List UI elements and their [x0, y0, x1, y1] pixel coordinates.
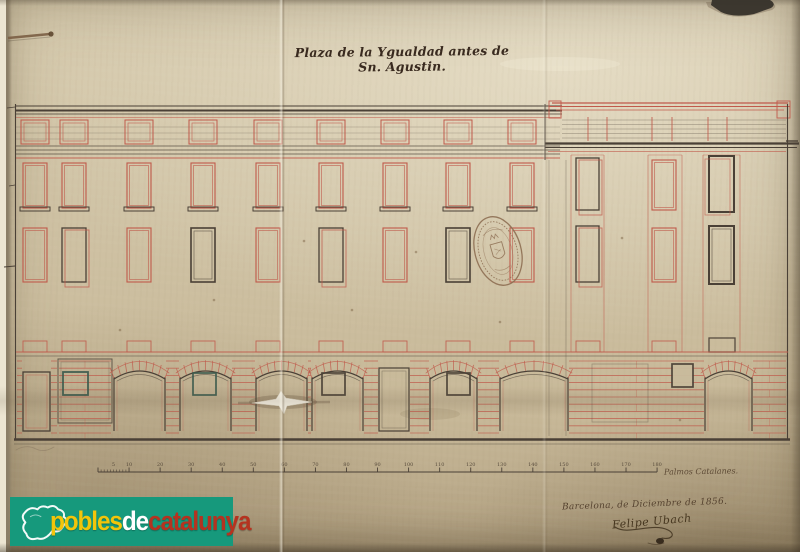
municipal-seal-stamp	[466, 211, 530, 291]
vertical-fold-crease	[279, 0, 285, 552]
facade-windows	[20, 120, 735, 352]
scanned-architectural-drawing: 5102030405060708090100110120130140150160…	[0, 0, 800, 552]
scale-tick-label: 170	[621, 462, 631, 468]
scale-tick-label: 140	[528, 462, 538, 468]
watermark-word-catalunya: catalunya	[148, 506, 250, 536]
scale-tick-label: 180	[652, 462, 662, 468]
watermark-wordmark: poblesdecatalunya	[50, 508, 250, 535]
scale-tick-label: 160	[590, 462, 600, 468]
vertical-fold-crease-2	[542, 0, 548, 552]
scale-tick-label: 40	[219, 462, 225, 468]
watermark-word-de: de	[122, 506, 148, 536]
scale-tick-label: 130	[497, 462, 507, 468]
watermark-word-pobles: pobles	[50, 506, 122, 536]
scale-tick-label: 20	[157, 462, 163, 468]
scale-tick-label: 90	[374, 462, 380, 468]
scale-tick-label: 10	[126, 462, 132, 468]
scale-bar: 5102030405060708090100110120130140150160…	[98, 462, 662, 472]
scale-units-caption: Palmos Catalanes.	[664, 466, 738, 476]
poblesdecatalunya-watermark: poblesdecatalunya	[10, 497, 233, 546]
scale-tick-label: 50	[250, 462, 256, 468]
scale-tick-label: 120	[466, 462, 476, 468]
horizontal-fold-shadow	[0, 386, 800, 416]
scale-tick-label: 100	[404, 462, 414, 468]
scale-tick-label: 30	[188, 462, 194, 468]
scale-tick-label: 70	[312, 462, 318, 468]
scale-tick-label: 110	[435, 462, 445, 468]
scale-tick-label: 150	[559, 462, 569, 468]
drawing-title: Plaza de la Ygualdad antes de Sn. Agusti…	[292, 43, 512, 75]
scale-tick-label: 5	[112, 462, 115, 468]
scale-tick-label: 80	[343, 462, 349, 468]
